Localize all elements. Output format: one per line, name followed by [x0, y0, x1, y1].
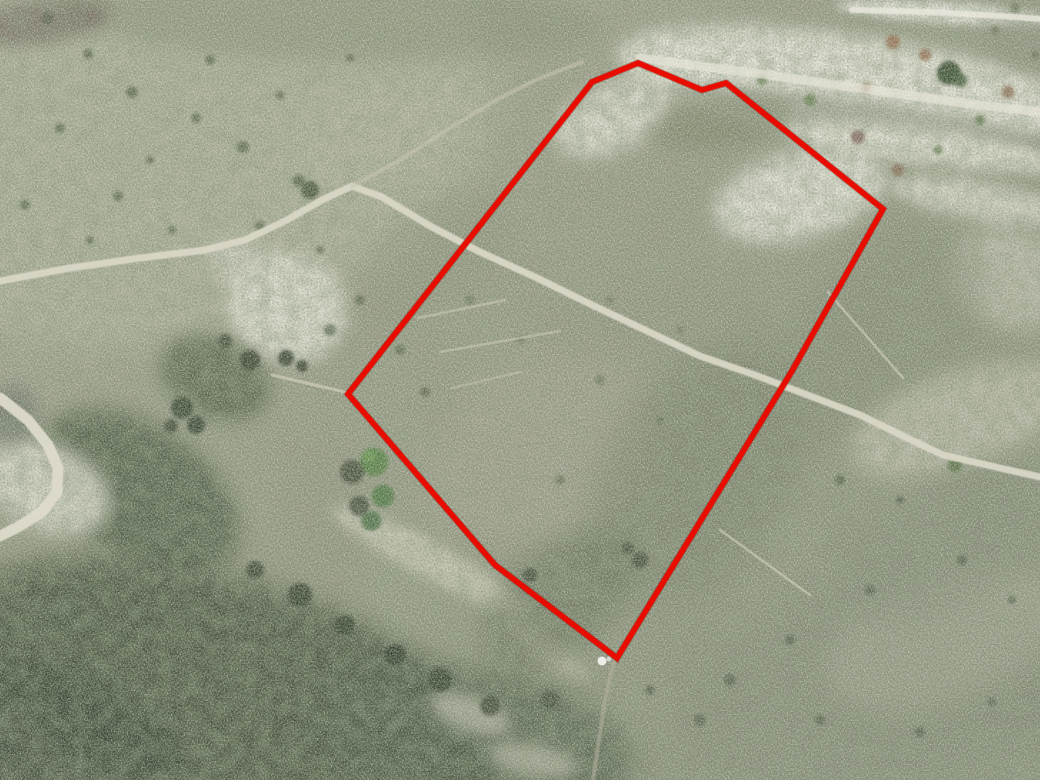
terrain-scene [0, 0, 1040, 780]
fine-light-speckle [0, 0, 1040, 780]
white-marker [598, 657, 607, 666]
aerial-photo-viewport [0, 0, 1040, 780]
